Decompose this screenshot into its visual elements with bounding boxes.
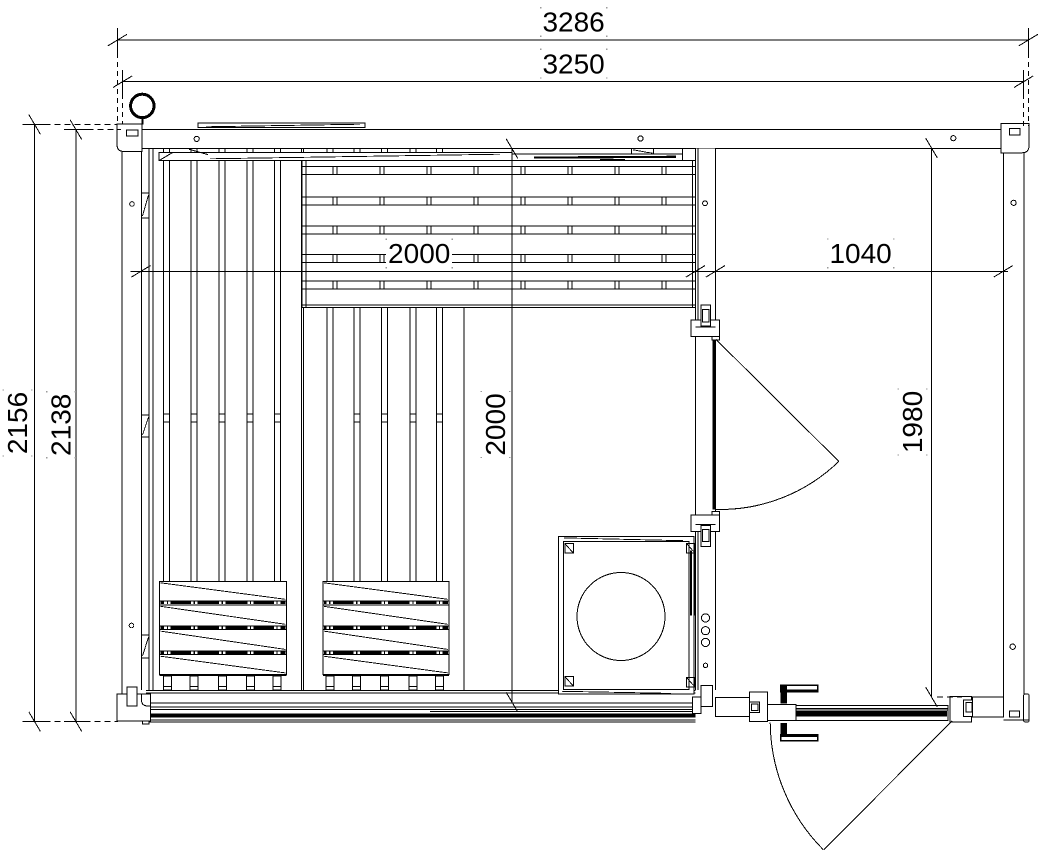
svg-text:2000: 2000 bbox=[388, 238, 450, 269]
svg-text:2000: 2000 bbox=[480, 393, 511, 455]
svg-text:2156: 2156 bbox=[2, 392, 33, 454]
svg-text:3286: 3286 bbox=[542, 7, 604, 38]
svg-text:2138: 2138 bbox=[46, 394, 77, 456]
svg-text:1980: 1980 bbox=[897, 391, 928, 453]
svg-text:3250: 3250 bbox=[542, 48, 604, 79]
svg-text:1040: 1040 bbox=[829, 238, 891, 269]
